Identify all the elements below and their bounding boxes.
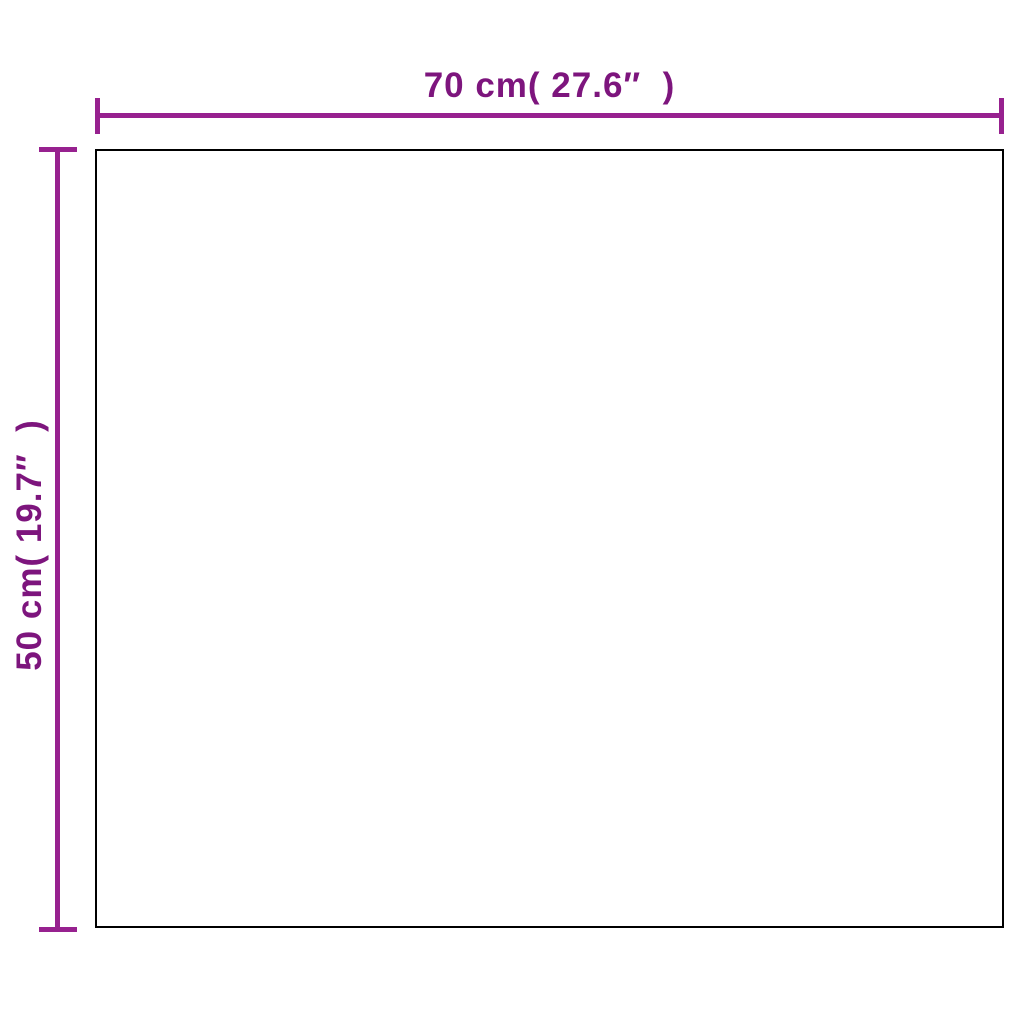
height-label: 50 cm( 19.7″ ) [10,419,50,671]
product-outline [95,149,1004,928]
height-dimension-tick-top [39,147,77,152]
height-dimension-line [55,149,60,930]
width-dimension-line [95,113,1004,118]
dimension-diagram: 70 cm( 27.6″ ) 50 cm( 19.7″ ) [0,0,1024,1024]
height-dimension-tick-bottom [39,927,77,932]
width-label: 70 cm( 27.6″ ) [95,66,1004,106]
